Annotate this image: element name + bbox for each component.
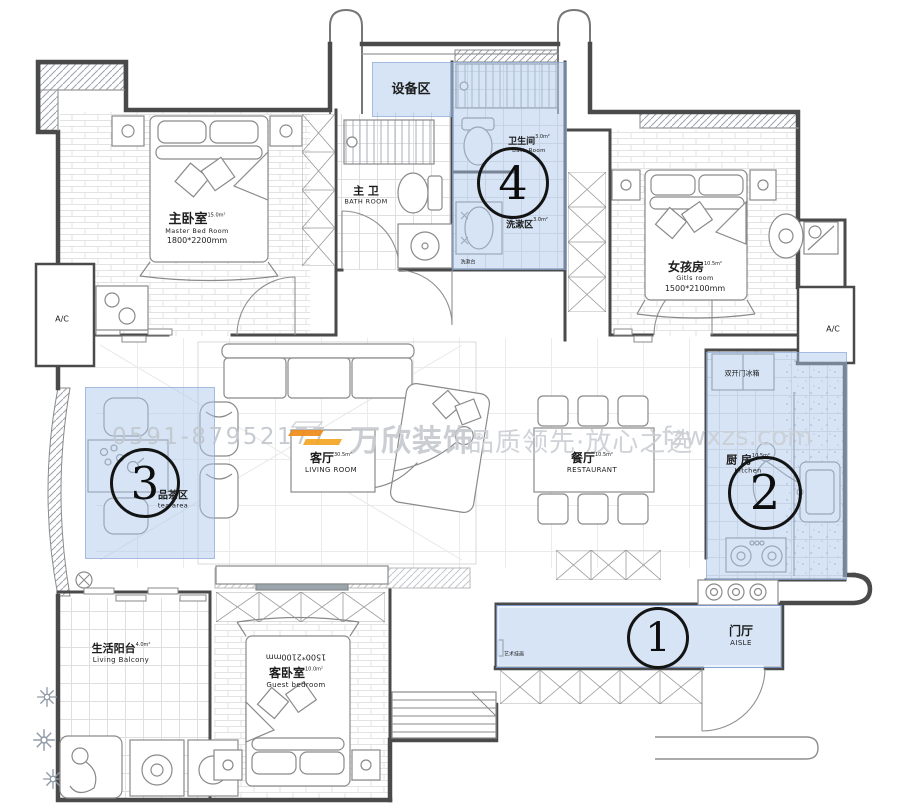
marker-2: 2 bbox=[728, 456, 802, 530]
label-guest-bedroom: 1500*2100mm 客卧室10.0m² Guest bedroom bbox=[266, 651, 326, 689]
label-equipment-area: 设备区 bbox=[391, 78, 430, 98]
label-wash-counter: 洗漱台 bbox=[460, 248, 475, 267]
marker-3: 3 bbox=[110, 448, 180, 518]
label-ac-right: A/C bbox=[826, 316, 840, 335]
label-girls-room: 女孩房10.5m² Gitls room 1500*2100mm bbox=[665, 256, 725, 294]
label-dining-room: 餐厅10.5m² RESTAURANT bbox=[567, 447, 617, 475]
label-art-painting: 艺术挂画 bbox=[504, 640, 524, 659]
label-master-bedroom: 主卧室15.0m² Master Bed Room 1800*2200mm bbox=[165, 208, 228, 246]
label-fridge: 双开门冰箱 bbox=[725, 360, 760, 379]
label-living-balcony: 生活阳台4.0m² Living Balcony bbox=[92, 637, 151, 665]
marker-1: 1 bbox=[627, 607, 689, 669]
entry-steps bbox=[392, 640, 503, 738]
label-aisle: 门厅 AISLE bbox=[729, 620, 753, 648]
marker-4: 4 bbox=[477, 147, 549, 219]
label-master-bath: 主 卫 BATH ROOM bbox=[344, 180, 387, 207]
label-living-room: 客厅30.5m² LIVING ROOM bbox=[305, 447, 357, 475]
label-ac-left: A/C bbox=[55, 306, 69, 325]
floorplan-page: 0591-87952177 万欣装饰® 品质领先·放心之选 fzwxzs.com… bbox=[0, 0, 900, 804]
